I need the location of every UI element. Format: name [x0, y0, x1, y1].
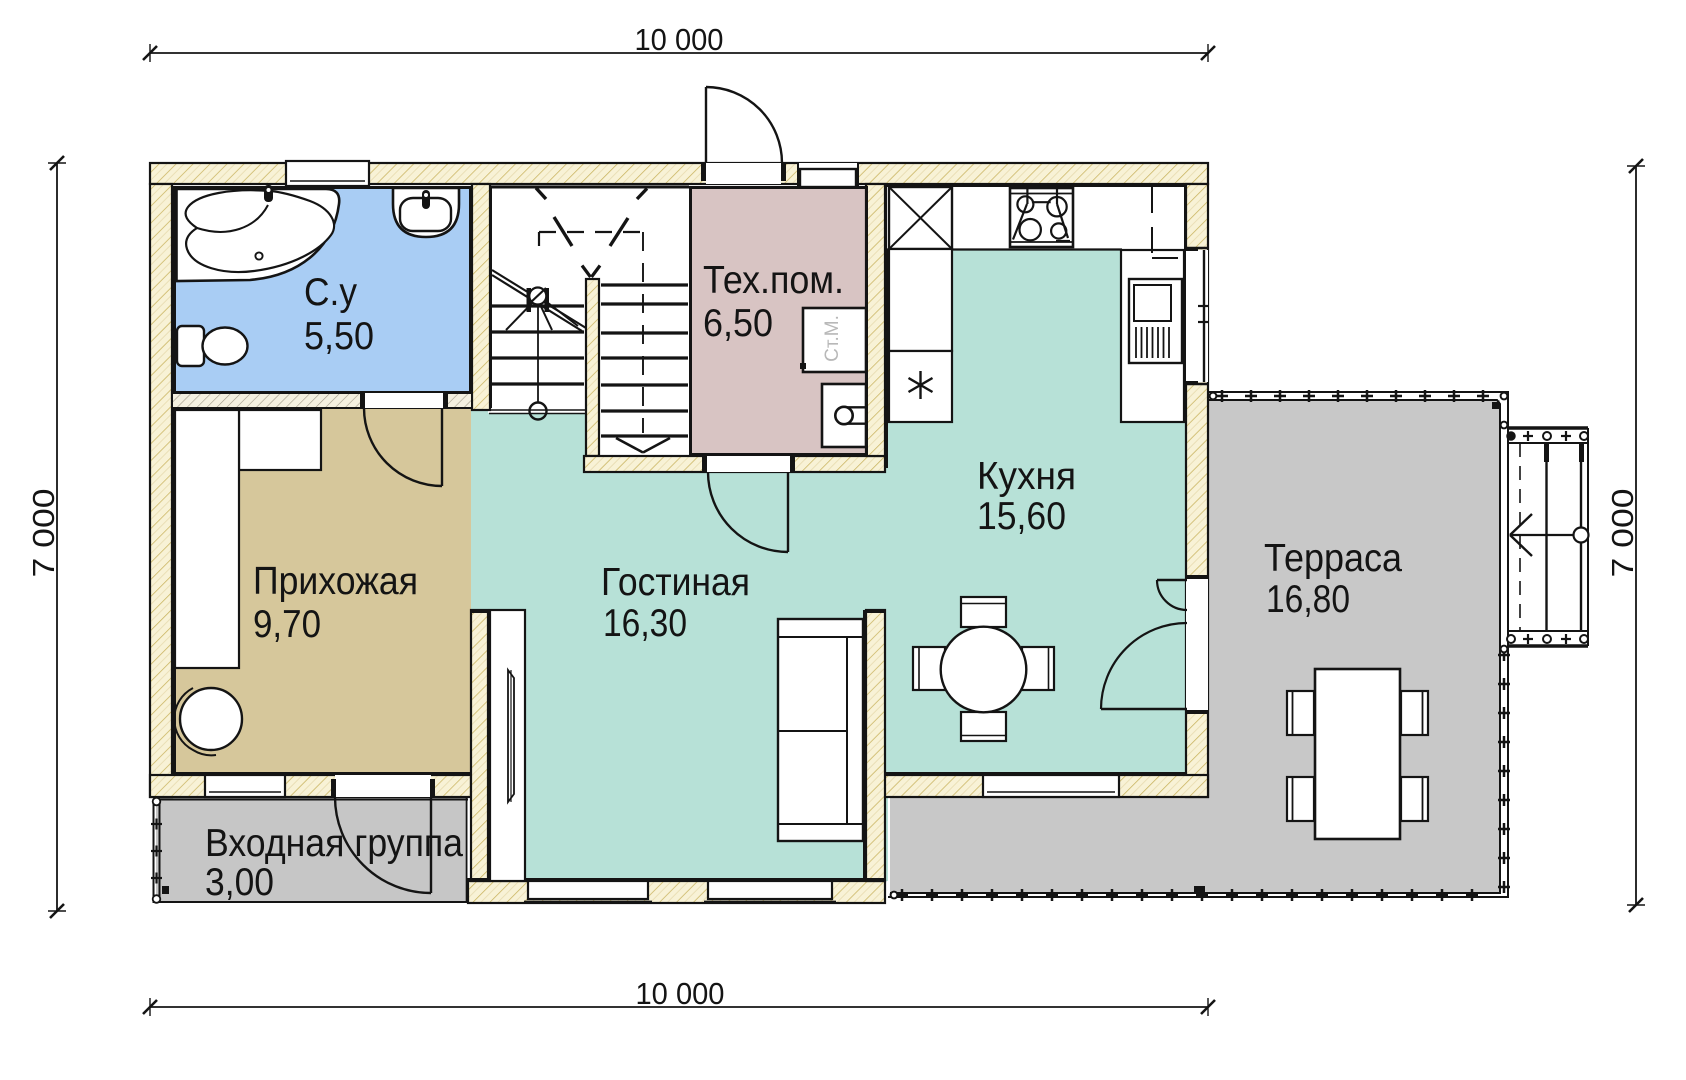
- svg-text:Входная группа: Входная группа: [205, 822, 463, 865]
- svg-text:Ст.М.: Ст.М.: [822, 315, 843, 362]
- svg-text:Тех.пом.: Тех.пом.: [703, 259, 844, 302]
- svg-text:7 000: 7 000: [26, 489, 61, 578]
- svg-text:6,50: 6,50: [703, 302, 773, 345]
- svg-text:Гостиная: Гостиная: [601, 561, 750, 604]
- svg-text:15,60: 15,60: [977, 495, 1066, 538]
- svg-text:7 000: 7 000: [1605, 489, 1640, 578]
- svg-text:9,70: 9,70: [253, 603, 321, 646]
- svg-text:10 000: 10 000: [635, 22, 724, 57]
- svg-text:5,50: 5,50: [304, 315, 374, 358]
- svg-text:Прихожая: Прихожая: [253, 560, 418, 603]
- svg-text:Кухня: Кухня: [977, 455, 1076, 498]
- svg-text:С.у: С.у: [304, 271, 357, 314]
- svg-text:16,80: 16,80: [1266, 578, 1350, 621]
- svg-text:16,30: 16,30: [603, 602, 687, 645]
- svg-text:10 000: 10 000: [636, 976, 725, 1011]
- svg-text:3,00: 3,00: [205, 861, 274, 904]
- svg-text:Терраса: Терраса: [1264, 537, 1402, 580]
